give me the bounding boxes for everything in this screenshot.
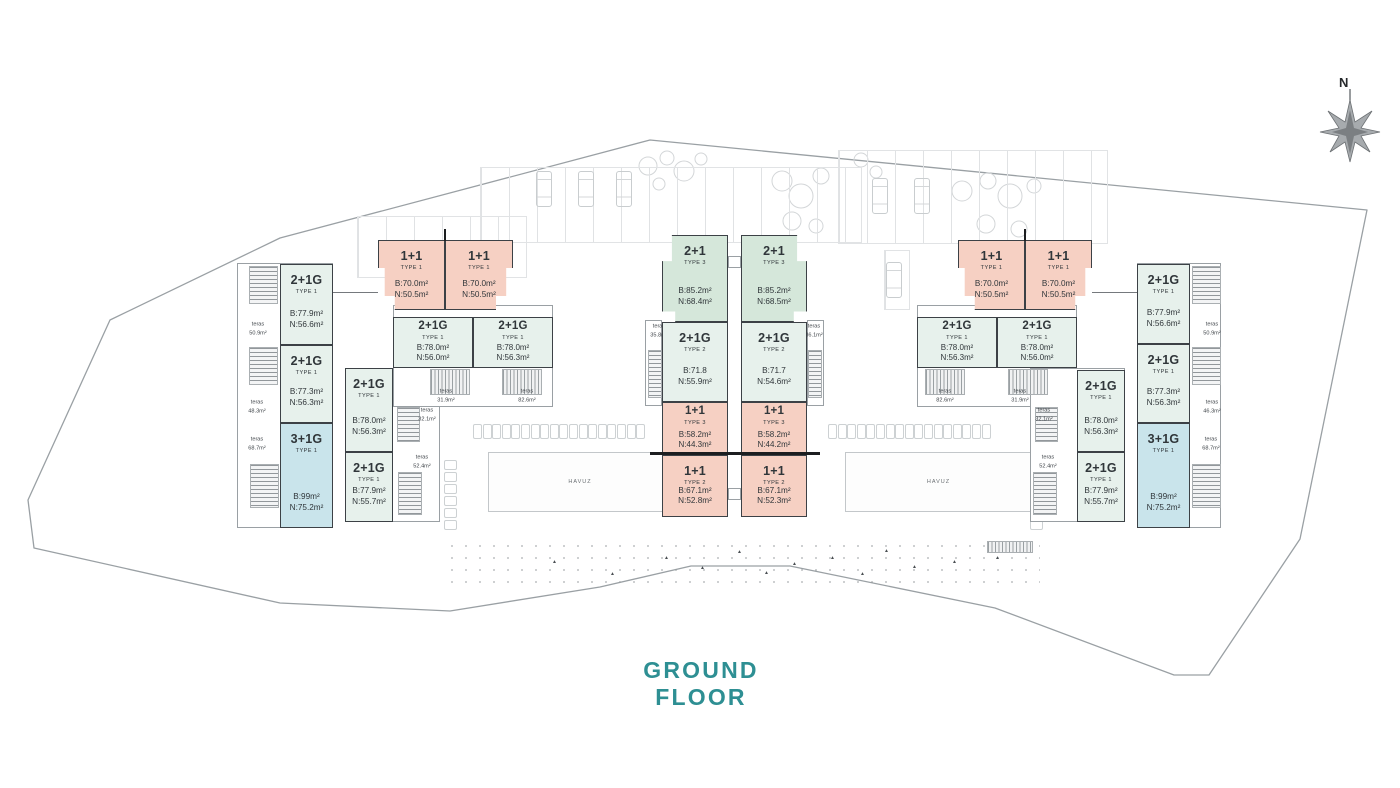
shrub-symbol xyxy=(559,424,568,439)
tree-icon xyxy=(695,153,707,165)
shrub-symbol xyxy=(444,472,457,482)
teras-label: teras46.3m² xyxy=(1203,398,1220,415)
unit-type: TYPE 2 xyxy=(684,347,706,353)
car-symbol xyxy=(536,171,552,207)
teras-label: teras32.1m² xyxy=(418,406,435,423)
floor-plan-canvas: GROUND FLOOR N ▲▲▲▲▲▲▲▲▲▲▲▲▲HAVUZHAVUZ2+… xyxy=(0,0,1400,788)
unit-type: TYPE 1 xyxy=(946,335,968,341)
compass-north-label: N xyxy=(1339,75,1348,90)
unit-a7[interactable]: 2+1GTYPE 1B:78.0m²N:56.3m² xyxy=(473,317,553,368)
unit-a5[interactable]: 2+1GTYPE 1B:77.9m²N:55.7m² xyxy=(345,452,393,522)
unit-areas: B:77.9m²N:55.7m² xyxy=(352,486,386,508)
shrub-symbol xyxy=(838,424,847,439)
shrub-symbol xyxy=(579,424,588,439)
unit-b7[interactable]: 3+1GTYPE 1B:99m²N:75.2m² xyxy=(1137,423,1190,528)
unit-type: TYPE 1 xyxy=(1090,477,1112,483)
structure-line xyxy=(1024,229,1026,241)
unit-b4[interactable]: 2+1GTYPE 1B:77.9m²N:55.7m² xyxy=(1077,452,1125,522)
structure-line xyxy=(444,229,446,241)
stairs xyxy=(808,350,822,398)
unit-areas: B:70.0m²N:50.5m² xyxy=(395,279,429,301)
unit-a4[interactable]: 2+1GTYPE 1B:78.0m²N:56.3m² xyxy=(345,368,393,452)
unit-areas: B:78.0m²N:56.3m² xyxy=(941,343,974,364)
unit-type: TYPE 2 xyxy=(763,347,785,353)
shrub-symbol xyxy=(502,424,511,439)
unit-name: 2+1G xyxy=(291,355,323,368)
terrace-outline xyxy=(728,488,741,500)
unit-name: 1+1 xyxy=(401,250,423,263)
shrub-symbol xyxy=(444,460,457,470)
stairs xyxy=(398,472,422,515)
unit-c1[interactable]: 2+1TYPE 3B:85.2m²N:68.4m² xyxy=(662,235,728,322)
unit-a2[interactable]: 2+1GTYPE 1B:77.3m²N:56.3m² xyxy=(280,345,333,423)
shrub-symbol xyxy=(444,484,457,494)
unit-name: 2+1G xyxy=(1022,321,1051,333)
gravel-mark: ▲ xyxy=(764,571,769,576)
unit-areas: B:99m²N:75.2m² xyxy=(290,492,324,514)
shrub-symbol xyxy=(550,424,559,439)
unit-name: 2+1G xyxy=(1148,274,1180,287)
pool-area: HAVUZ xyxy=(845,452,1032,512)
unit-name: 2+1 xyxy=(763,245,785,258)
unit-name: 2+1G xyxy=(353,462,385,475)
unit-c5[interactable]: 2+1TYPE 3B:85.2m²N:68.5m² xyxy=(741,235,807,322)
unit-a3[interactable]: 3+1GTYPE 1B:99m²N:75.2m² xyxy=(280,423,333,528)
unit-type: TYPE 1 xyxy=(401,265,423,271)
unit-areas: B:78.0m²N:56.0m² xyxy=(417,343,450,364)
unit-areas: B:78.0m²N:56.3m² xyxy=(352,416,386,438)
shrub-symbol xyxy=(972,424,981,439)
stairs xyxy=(1192,347,1221,385)
unit-b3[interactable]: 2+1GTYPE 1B:78.0m²N:56.3m² xyxy=(1077,370,1125,452)
stairs xyxy=(1033,472,1057,515)
gravel-mark: ▲ xyxy=(912,565,917,570)
unit-c6[interactable]: 2+1GTYPE 2B:71.7N:54.6m² xyxy=(741,322,807,402)
shrub-symbol xyxy=(934,424,943,439)
unit-b6[interactable]: 2+1GTYPE 1B:77.3m²N:56.3m² xyxy=(1137,344,1190,423)
unit-name: 3+1G xyxy=(291,433,323,446)
unit-type: TYPE 3 xyxy=(763,420,785,426)
stairs xyxy=(249,347,278,385)
teras-label: teras82.6m² xyxy=(936,387,953,404)
stairs xyxy=(397,407,420,442)
teras-label: teras68.7m² xyxy=(248,435,265,452)
shrub-symbol xyxy=(588,424,597,439)
gravel-mark: ▲ xyxy=(792,562,797,567)
structure-line xyxy=(650,452,820,455)
shrub-symbol xyxy=(627,424,636,439)
unit-areas: B:85.2m²N:68.5m² xyxy=(757,286,791,308)
unit-name: 1+1 xyxy=(981,250,1003,263)
shrub-symbol xyxy=(483,424,492,439)
teras-label: teras50.9m² xyxy=(249,320,266,337)
connector-line xyxy=(1092,292,1137,293)
shrub-symbol xyxy=(847,424,856,439)
unit-name: 2+1G xyxy=(1085,380,1117,393)
unit-c4[interactable]: 1+1TYPE 2B:67.1m²N:52.8m² xyxy=(662,455,728,517)
gravel-mark: ▲ xyxy=(830,556,835,561)
unit-type: TYPE 3 xyxy=(684,260,706,266)
shrub-symbol xyxy=(895,424,904,439)
shrub-symbol xyxy=(857,424,866,439)
unit-type: TYPE 1 xyxy=(422,335,444,341)
unit-name: 2+1G xyxy=(291,274,323,287)
pool-label: HAVUZ xyxy=(927,479,950,485)
teras-label: teras52.4m² xyxy=(413,453,430,470)
unit-name: 1+1 xyxy=(763,465,785,478)
shrub-symbol xyxy=(473,424,482,439)
unit-a1[interactable]: 2+1GTYPE 1B:77.9m²N:56.6m² xyxy=(280,264,333,345)
car-symbol xyxy=(872,178,888,214)
shrub-symbol xyxy=(905,424,914,439)
teras-label: teras82.6m² xyxy=(518,387,535,404)
unit-type: TYPE 1 xyxy=(296,370,318,376)
shrub-symbol xyxy=(569,424,578,439)
shrub-symbol xyxy=(598,424,607,439)
shrub-symbol xyxy=(444,496,457,506)
teras-label: teras48.3m² xyxy=(248,398,265,415)
car-symbol xyxy=(578,171,594,207)
gravel-mark: ▲ xyxy=(860,572,865,577)
unit-areas: B:70.0m²N:50.5m² xyxy=(462,279,496,301)
unit-name: 2+1G xyxy=(1148,354,1180,367)
shrub-symbol xyxy=(511,424,520,439)
unit-name: 2+1 xyxy=(684,245,706,258)
unit-name: 1+1 xyxy=(764,406,784,418)
car-symbol xyxy=(886,262,902,298)
teras-label: teras68.7m² xyxy=(1202,435,1219,452)
floor-title: GROUND FLOOR xyxy=(596,657,806,711)
teras-label: teras52.4m² xyxy=(1039,453,1056,470)
unit-a6[interactable]: 2+1GTYPE 1B:78.0m²N:56.0m² xyxy=(393,317,473,368)
gravel-mark: ▲ xyxy=(610,572,615,577)
gravel-mark: ▲ xyxy=(700,566,705,571)
unit-areas: B:77.9m²N:55.7m² xyxy=(1084,486,1118,508)
shrub-symbol xyxy=(886,424,895,439)
unit-type: TYPE 3 xyxy=(763,260,785,266)
unit-areas: B:78.0m²N:56.3m² xyxy=(1084,416,1118,438)
unit-name: 2+1G xyxy=(1085,462,1117,475)
shrub-symbol xyxy=(914,424,923,439)
unit-name: 2+1G xyxy=(418,321,447,333)
unit-areas: B:77.9m²N:56.6m² xyxy=(1147,308,1181,330)
gravel-mark: ▲ xyxy=(552,560,557,565)
unit-areas: B:71.8N:55.9m² xyxy=(678,366,712,388)
teras-label: teras32.1m² xyxy=(1035,406,1052,423)
car-symbol xyxy=(616,171,632,207)
unit-type: TYPE 1 xyxy=(1153,289,1175,295)
pool-area: HAVUZ xyxy=(488,452,672,512)
shrub-symbol xyxy=(953,424,962,439)
teras-label: teras31.9m² xyxy=(1011,387,1028,404)
unit-name: 1+1 xyxy=(1048,250,1070,263)
unit-areas: B:85.2m²N:68.4m² xyxy=(678,286,712,308)
teras-label: teras50.9m² xyxy=(1203,320,1220,337)
shrub-symbol xyxy=(982,424,991,439)
stairs xyxy=(1192,266,1221,304)
unit-areas: B:58.2m²N:44.3m² xyxy=(679,430,712,451)
unit-name: 2+1G xyxy=(353,378,385,391)
shrub-symbol xyxy=(962,424,971,439)
gravel-mark: ▲ xyxy=(952,560,957,565)
unit-name: 1+1 xyxy=(684,465,706,478)
shrub-symbol xyxy=(444,520,457,530)
unit-name: 3+1G xyxy=(1148,433,1180,446)
compass-icon: N xyxy=(1312,66,1388,170)
unit-type: TYPE 1 xyxy=(1026,335,1048,341)
unit-type: TYPE 1 xyxy=(296,448,318,454)
unit-c2[interactable]: 2+1GTYPE 2B:71.8N:55.9m² xyxy=(662,322,728,402)
unit-type: TYPE 1 xyxy=(1153,448,1175,454)
shrub-symbol xyxy=(876,424,885,439)
unit-type: TYPE 1 xyxy=(1153,369,1175,375)
unit-type: TYPE 1 xyxy=(502,335,524,341)
connector-line xyxy=(333,292,378,293)
shrub-symbol xyxy=(828,424,837,439)
unit-type: TYPE 1 xyxy=(1048,265,1070,271)
shrub-symbol xyxy=(607,424,616,439)
shrub-symbol xyxy=(540,424,549,439)
shrub-symbol xyxy=(521,424,530,439)
unit-type: TYPE 1 xyxy=(358,393,380,399)
shrub-symbol xyxy=(636,424,645,439)
unit-type: TYPE 3 xyxy=(684,420,706,426)
shrub-symbol xyxy=(943,424,952,439)
unit-areas: B:70.0m²N:50.5m² xyxy=(1042,279,1076,301)
unit-c3[interactable]: 1+1TYPE 3B:58.2m²N:44.3m² xyxy=(662,402,728,455)
unit-areas: B:78.0m²N:56.3m² xyxy=(497,343,530,364)
unit-areas: B:77.3m²N:56.3m² xyxy=(290,387,324,409)
gravel-mark: ▲ xyxy=(664,556,669,561)
unit-name: 2+1G xyxy=(498,321,527,333)
unit-type: TYPE 1 xyxy=(1090,395,1112,401)
unit-areas: B:58.2m²N:44.2m² xyxy=(758,430,791,451)
shrub-symbol xyxy=(492,424,501,439)
shrub-symbol xyxy=(617,424,626,439)
unit-areas: B:67.1m²N:52.8m² xyxy=(678,486,712,508)
unit-name: 1+1 xyxy=(468,250,490,263)
stairs xyxy=(987,541,1033,553)
gravel-texture xyxy=(445,540,1040,588)
unit-areas: B:71.7N:54.6m² xyxy=(757,366,791,388)
shrub-symbol xyxy=(866,424,875,439)
unit-areas: B:78.0m²N:56.0m² xyxy=(1021,343,1054,364)
unit-type: TYPE 1 xyxy=(981,265,1003,271)
unit-type: TYPE 1 xyxy=(468,265,490,271)
shrub-symbol xyxy=(531,424,540,439)
gravel-mark: ▲ xyxy=(995,556,1000,561)
terrace-outline xyxy=(728,256,741,268)
unit-c7[interactable]: 1+1TYPE 3B:58.2m²N:44.2m² xyxy=(741,402,807,455)
unit-areas: B:99m²N:75.2m² xyxy=(1147,492,1181,514)
tree-icon xyxy=(660,151,674,165)
teras-label: teras31.9m² xyxy=(437,387,454,404)
unit-areas: B:77.3m²N:56.3m² xyxy=(1147,387,1181,409)
pool-label: HAVUZ xyxy=(568,479,591,485)
stairs xyxy=(1192,464,1221,508)
unit-b2[interactable]: 2+1GTYPE 1B:78.0m²N:56.0m² xyxy=(997,317,1077,368)
unit-areas: B:67.1m²N:52.3m² xyxy=(757,486,791,508)
teras-label: teras36.1m² xyxy=(805,322,822,339)
unit-name: 2+1G xyxy=(942,321,971,333)
gravel-mark: ▲ xyxy=(884,549,889,554)
gravel-mark: ▲ xyxy=(737,550,742,555)
unit-name: 2+1G xyxy=(679,332,711,345)
shrub-symbol xyxy=(924,424,933,439)
unit-c8[interactable]: 1+1TYPE 2B:67.1m²N:52.3m² xyxy=(741,455,807,517)
unit-name: 2+1G xyxy=(758,332,790,345)
unit-type: TYPE 1 xyxy=(296,289,318,295)
stairs xyxy=(250,464,279,508)
unit-name: 1+1 xyxy=(685,406,705,418)
stairs xyxy=(249,266,278,304)
unit-areas: B:70.0m²N:50.5m² xyxy=(975,279,1009,301)
car-symbol xyxy=(914,178,930,214)
stairs xyxy=(648,350,662,398)
unit-areas: B:77.9m²N:56.6m² xyxy=(290,309,324,331)
shrub-symbol xyxy=(444,508,457,518)
unit-b5[interactable]: 2+1GTYPE 1B:77.9m²N:56.6m² xyxy=(1137,264,1190,344)
unit-type: TYPE 1 xyxy=(358,477,380,483)
unit-b1[interactable]: 2+1GTYPE 1B:78.0m²N:56.3m² xyxy=(917,317,997,368)
